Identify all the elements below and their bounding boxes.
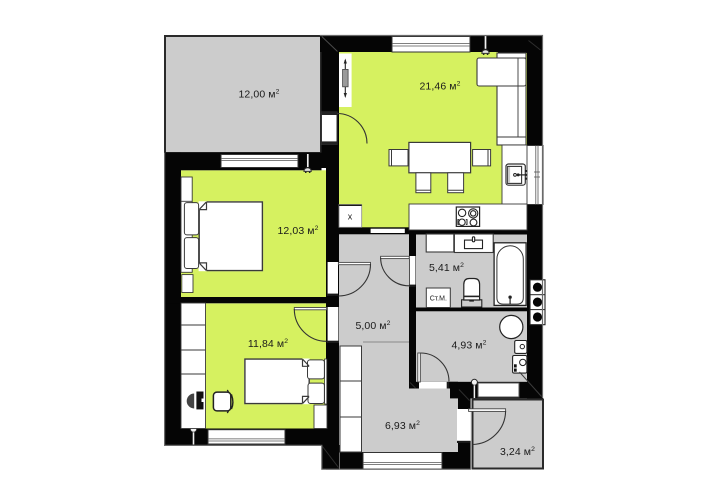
svg-text:4,93 м2: 4,93 м2 — [451, 340, 486, 352]
svg-text:6,93 м2: 6,93 м2 — [385, 420, 420, 432]
svg-text:5,00 м2: 5,00 м2 — [355, 320, 390, 332]
svg-text:5,41 м2: 5,41 м2 — [429, 262, 464, 274]
svg-text:11,84 м2: 11,84 м2 — [248, 338, 288, 350]
svg-text:3,24 м2: 3,24 м2 — [500, 446, 535, 458]
svg-text:12,03 м2: 12,03 м2 — [277, 225, 318, 237]
svg-text:Ст.М.: Ст.М. — [430, 295, 447, 302]
svg-text:21,46 м2: 21,46 м2 — [419, 81, 460, 93]
svg-text:x: x — [348, 212, 353, 222]
svg-text:12,00 м2: 12,00 м2 — [238, 89, 279, 101]
